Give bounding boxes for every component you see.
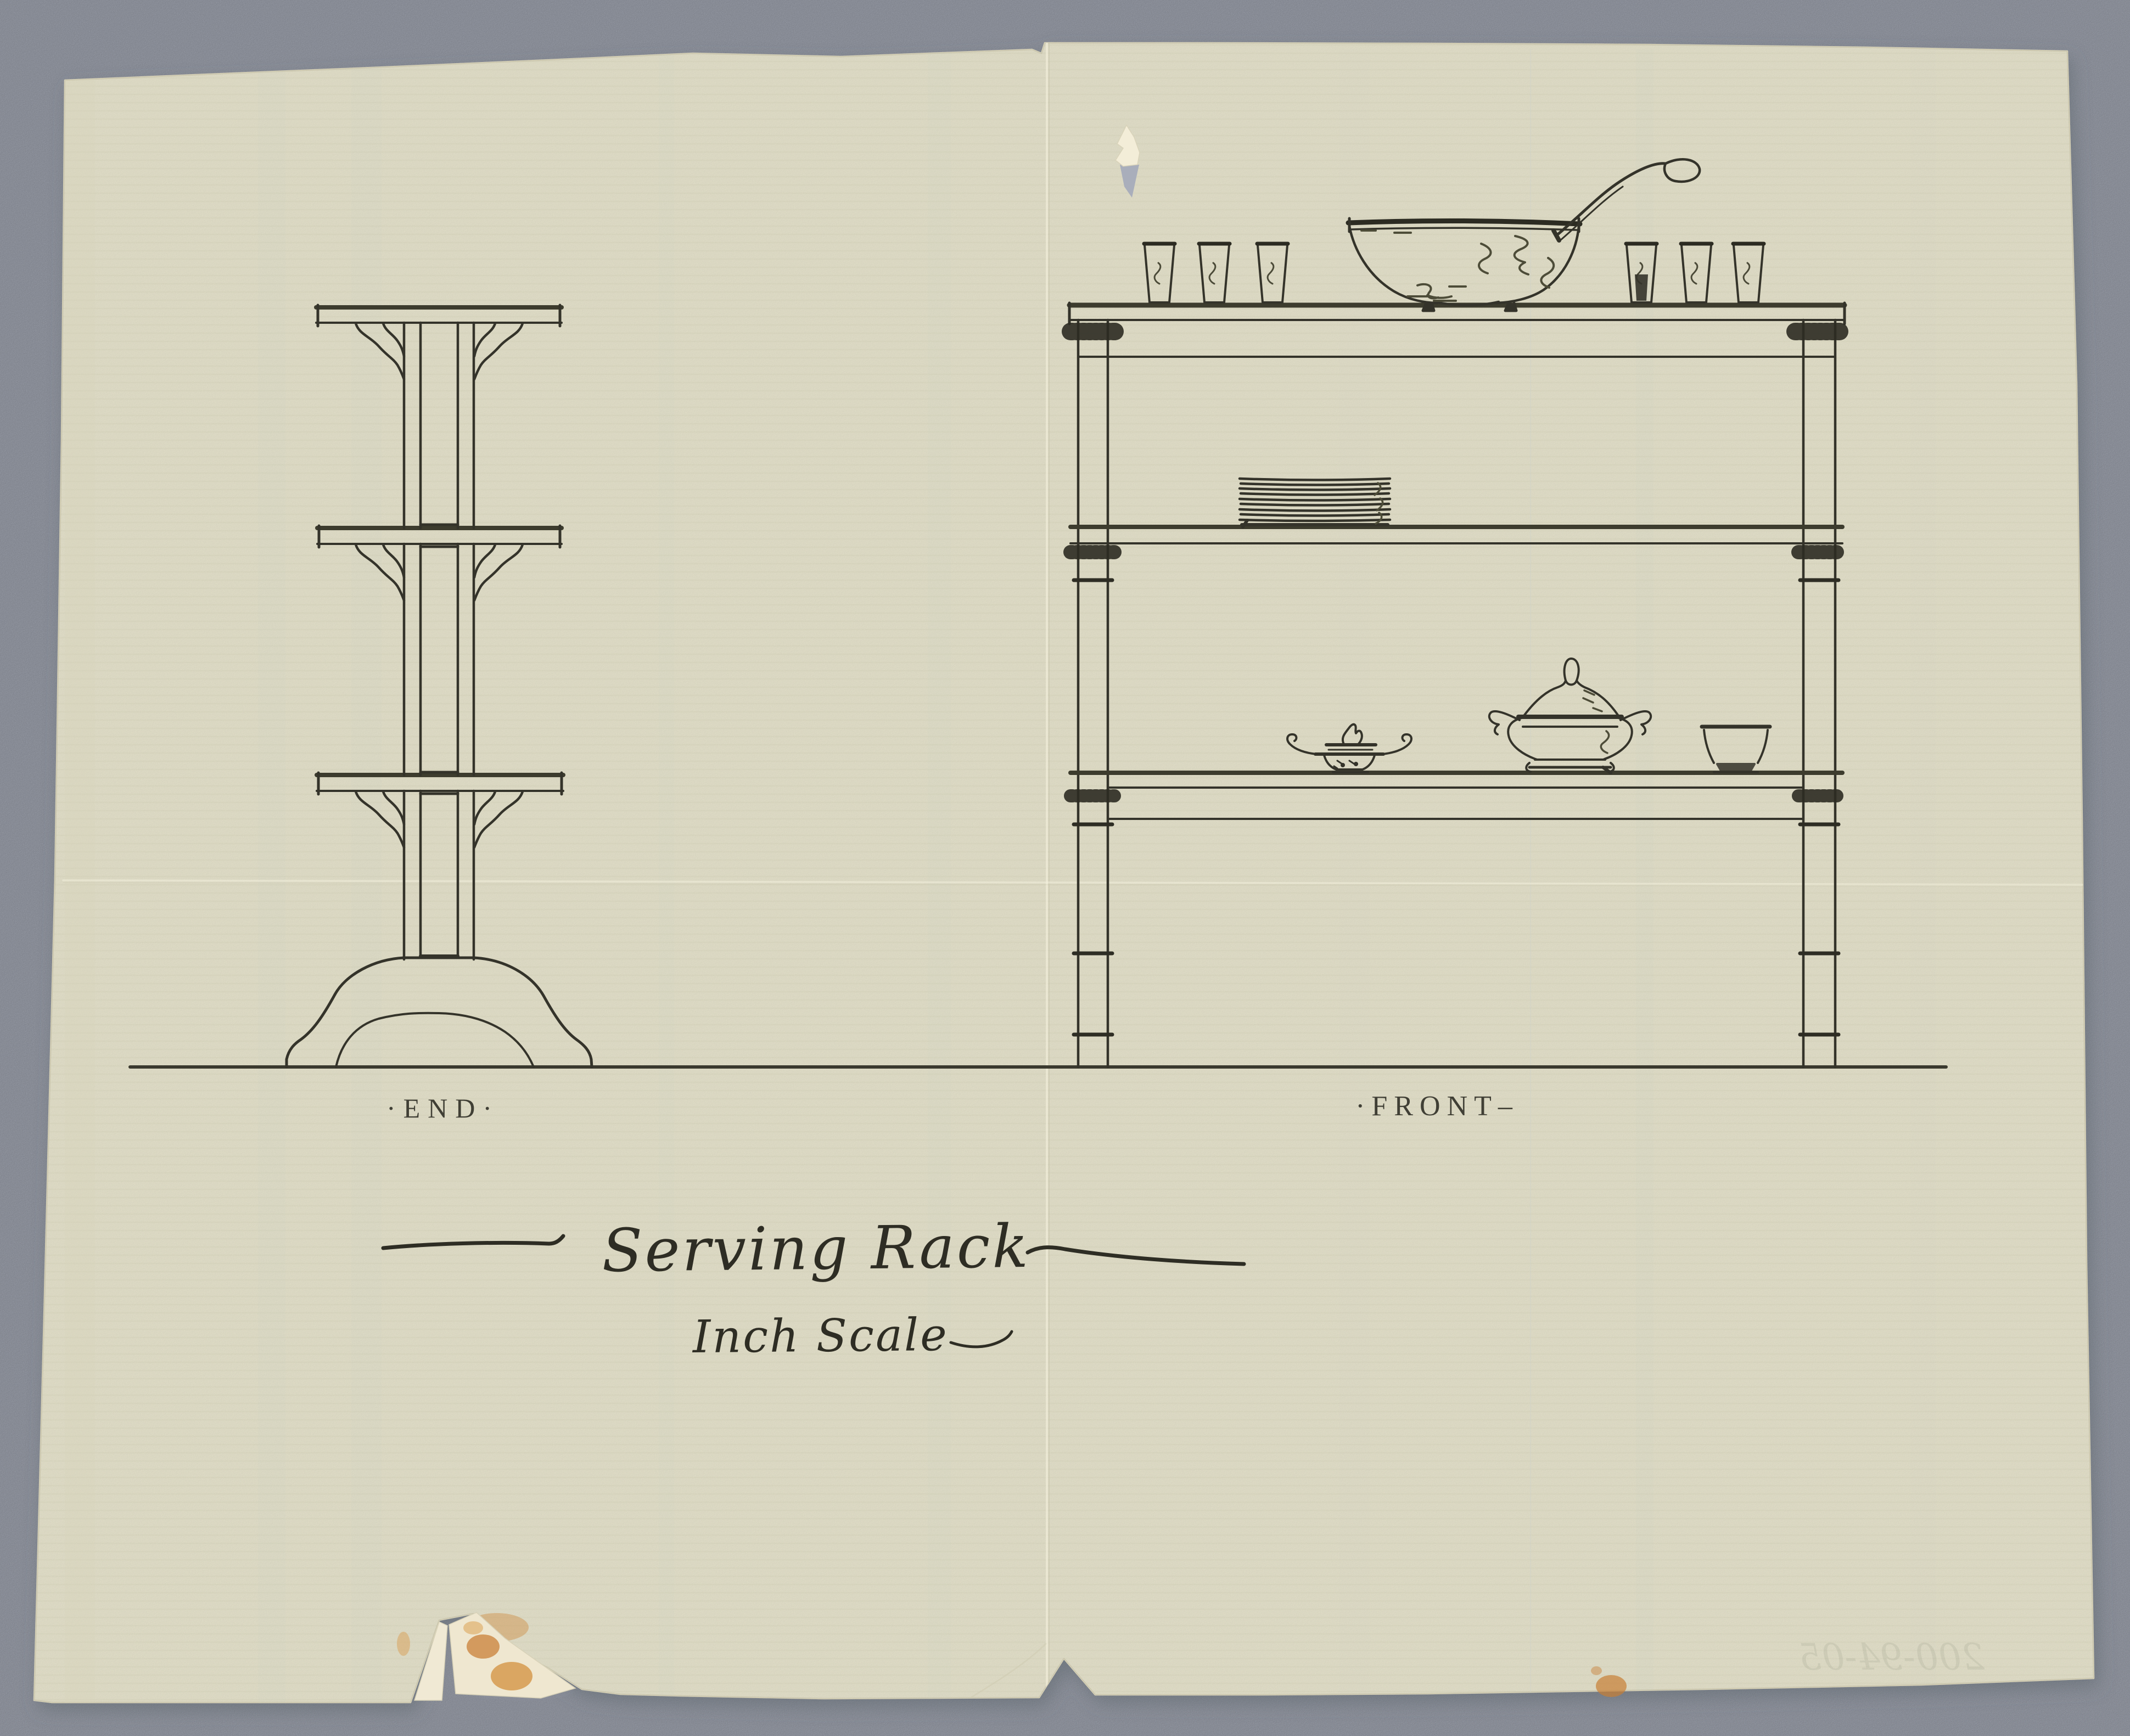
- stain: [397, 1632, 410, 1656]
- stain: [491, 1662, 532, 1690]
- stain: [1591, 1666, 1602, 1675]
- end-view-label: ·END·: [386, 1093, 500, 1123]
- stain: [467, 1634, 500, 1659]
- scale-label: Inch Scale: [691, 1309, 949, 1363]
- dark-glass-fill: [1635, 274, 1648, 301]
- front-view-label: ·FRONT–: [1355, 1091, 1519, 1122]
- verso-inscription-showthrough: 200-94-05: [1798, 1636, 1985, 1678]
- scanned-drawing: ·END· ·FRONT– Serving Rack Inch Scale 20…: [0, 0, 2130, 1736]
- stain: [1596, 1675, 1627, 1697]
- stain: [463, 1621, 483, 1634]
- drawing-title: Serving Rack: [602, 1212, 1030, 1285]
- paper-texture: [0, 0, 2130, 1736]
